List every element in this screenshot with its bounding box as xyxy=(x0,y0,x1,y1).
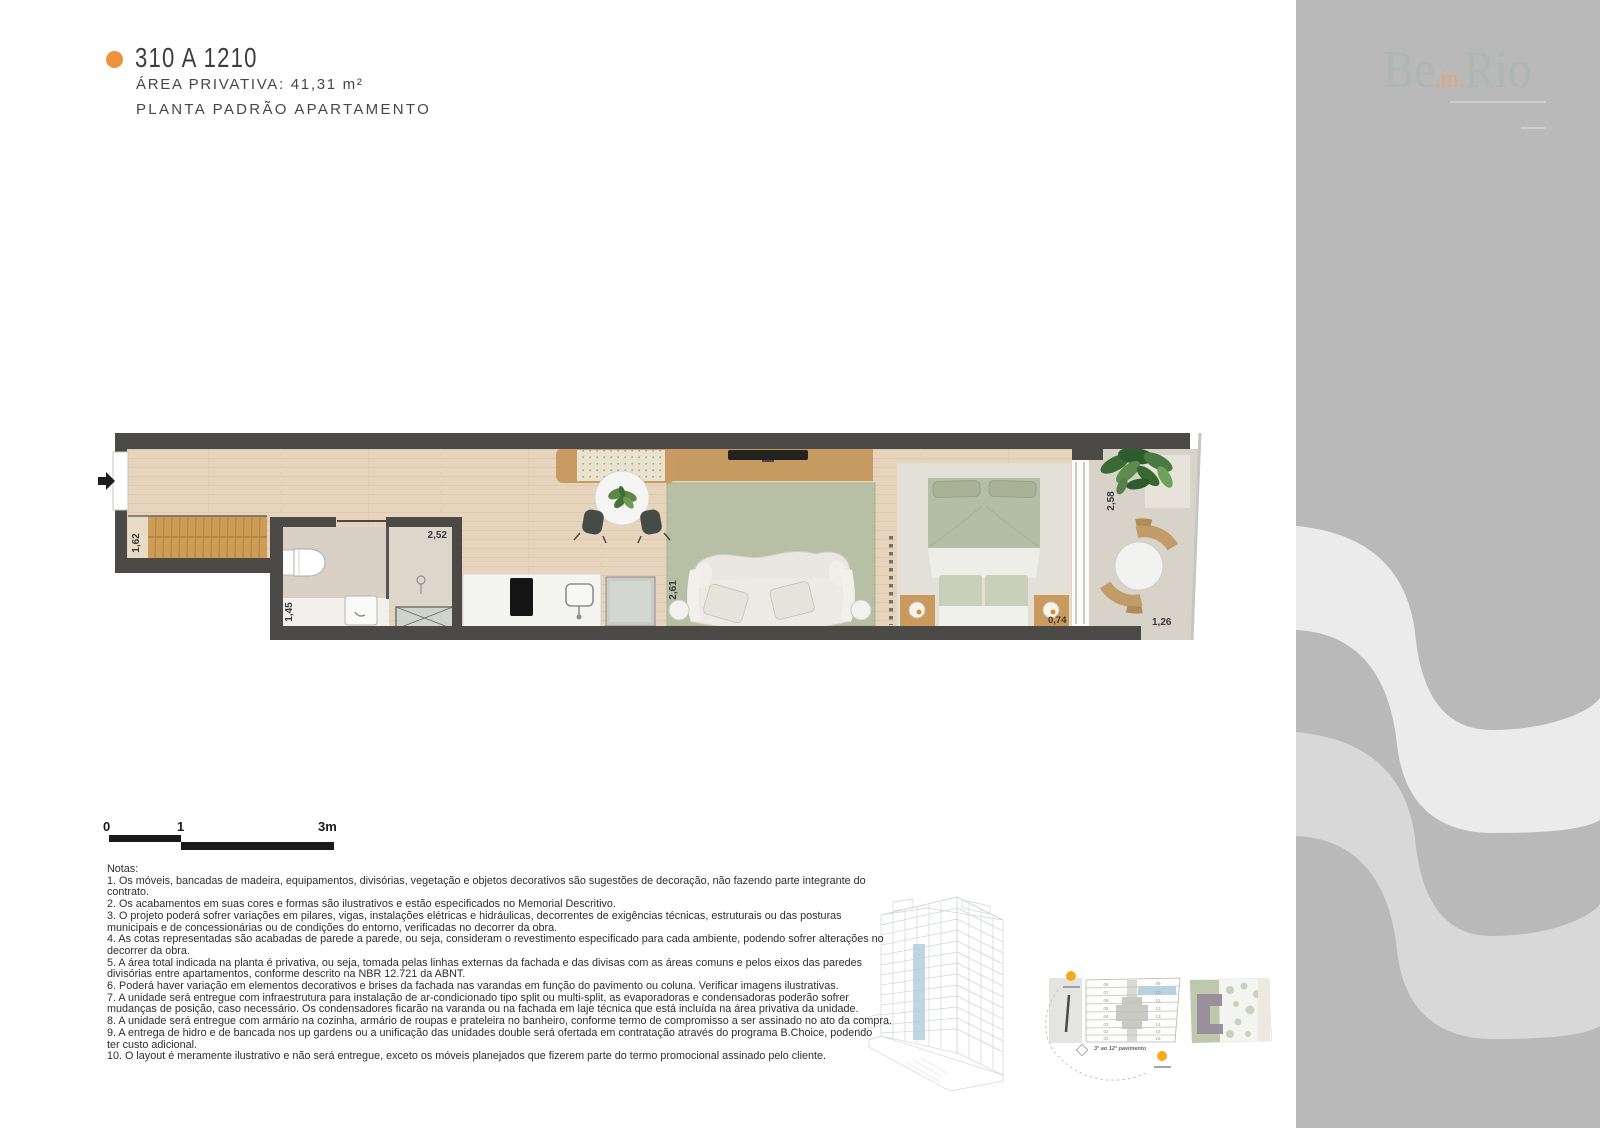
svg-text:1,62: 1,62 xyxy=(131,533,142,553)
svg-text:1: 1 xyxy=(177,819,184,834)
svg-text:02: 02 xyxy=(1103,1029,1109,1034)
svg-text:0,74: 0,74 xyxy=(1048,615,1067,626)
svg-text:3m: 3m xyxy=(318,819,337,834)
svg-text:06: 06 xyxy=(1103,998,1109,1003)
svg-text:2,52: 2,52 xyxy=(428,530,448,541)
svg-text:08: 08 xyxy=(1103,982,1109,987)
svg-text:11: 11 xyxy=(1156,998,1161,1003)
svg-text:1,26: 1,26 xyxy=(1152,617,1172,628)
svg-text:07: 07 xyxy=(1103,990,1109,995)
svg-text:13: 13 xyxy=(1155,1014,1161,1019)
svg-text:09: 09 xyxy=(1155,981,1161,986)
svg-text:04: 04 xyxy=(1103,1014,1109,1019)
svg-text:03: 03 xyxy=(1103,1022,1109,1027)
svg-text:12: 12 xyxy=(1155,1006,1161,1011)
svg-text:01: 01 xyxy=(1103,1036,1109,1041)
svg-text:2,58: 2,58 xyxy=(1106,491,1117,511)
svg-text:16: 16 xyxy=(1155,1036,1161,1041)
svg-text:14: 14 xyxy=(1155,1022,1161,1027)
svg-text:10: 10 xyxy=(1155,990,1161,995)
svg-text:0: 0 xyxy=(103,819,110,834)
svg-text:2,61: 2,61 xyxy=(668,580,679,600)
svg-text:3° ao 12° pavimento: 3° ao 12° pavimento xyxy=(1094,1046,1147,1052)
svg-text:05: 05 xyxy=(1103,1006,1109,1011)
svg-text:1,45: 1,45 xyxy=(284,602,295,622)
svg-text:15: 15 xyxy=(1155,1029,1161,1034)
